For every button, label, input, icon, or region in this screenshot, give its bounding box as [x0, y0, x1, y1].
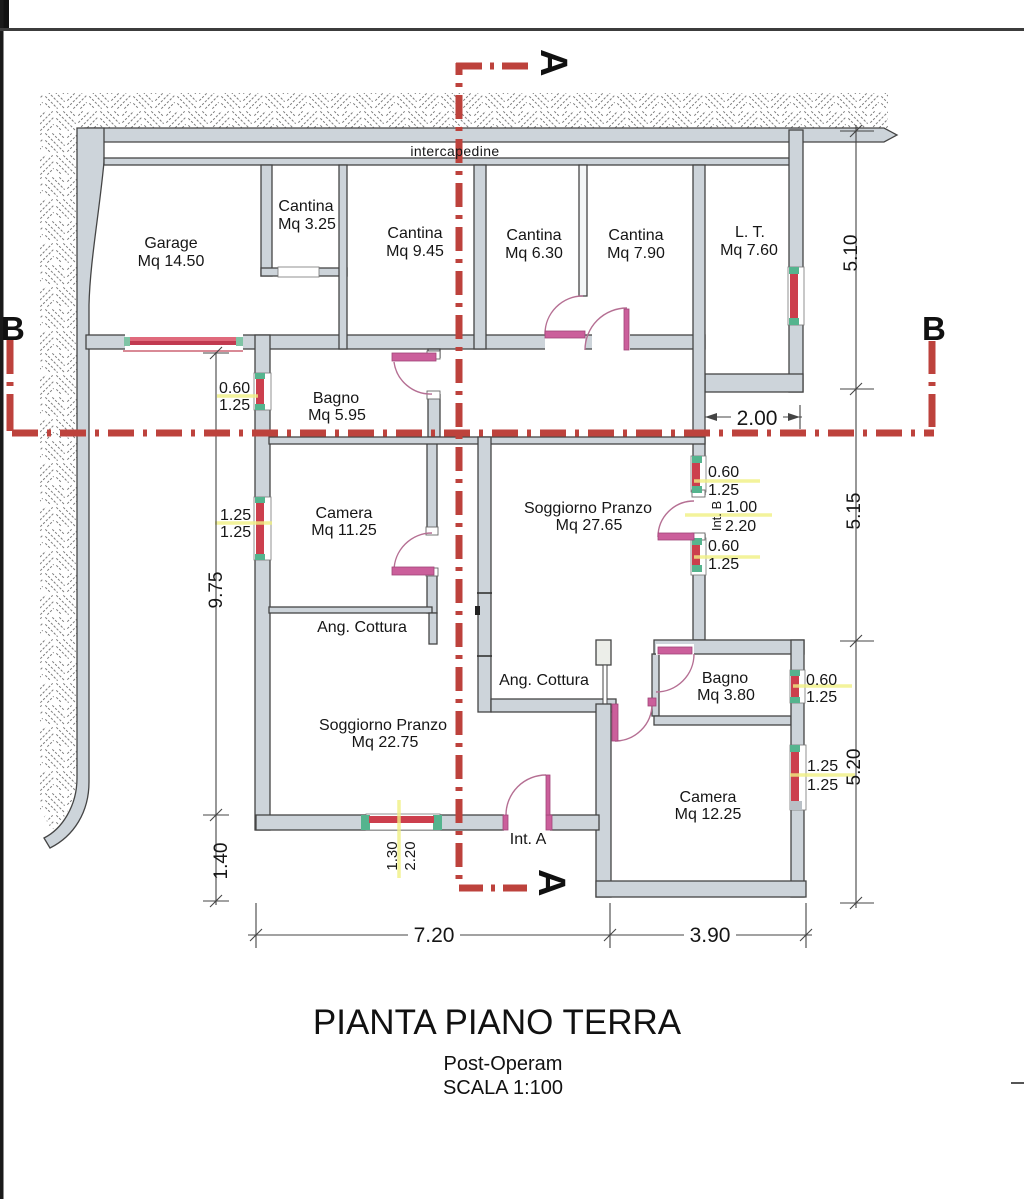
svg-text:0.60: 0.60 [806, 672, 837, 689]
svg-text:Soggiorno Pranzo: Soggiorno Pranzo [524, 500, 652, 517]
svg-text:1.25: 1.25 [220, 507, 251, 524]
svg-text:1.00: 1.00 [726, 499, 757, 516]
svg-text:Cantina: Cantina [608, 227, 663, 244]
svg-text:Int. A: Int. A [510, 831, 547, 848]
svg-text:1.30: 1.30 [384, 841, 401, 870]
svg-text:Ang. Cottura: Ang. Cottura [317, 619, 407, 636]
svg-text:PIANTA PIANO TERRA: PIANTA PIANO TERRA [313, 1003, 682, 1042]
svg-text:A: A [530, 869, 572, 896]
svg-text:Camera: Camera [680, 789, 737, 806]
svg-text:Bagno: Bagno [702, 670, 748, 687]
svg-text:Int. B: Int. B [709, 501, 724, 531]
svg-text:Cantina: Cantina [387, 225, 442, 242]
svg-text:Soggiorno Pranzo: Soggiorno Pranzo [319, 717, 447, 734]
svg-text:1.25: 1.25 [807, 758, 838, 775]
svg-text:2.00: 2.00 [737, 407, 778, 430]
svg-text:1.40: 1.40 [211, 843, 232, 880]
svg-text:5.15: 5.15 [844, 493, 865, 530]
svg-text:B: B [1, 310, 25, 347]
svg-text:Bagno: Bagno [313, 390, 359, 407]
svg-text:Mq 3.80: Mq 3.80 [697, 687, 755, 704]
svg-text:2.20: 2.20 [402, 841, 419, 870]
svg-text:Mq 5.95: Mq 5.95 [308, 407, 366, 424]
svg-text:5.20: 5.20 [844, 749, 865, 786]
svg-text:Mq 27.65: Mq 27.65 [556, 517, 623, 534]
svg-text:1.25: 1.25 [220, 524, 251, 541]
svg-text:Mq 14.50: Mq 14.50 [138, 253, 205, 270]
svg-text:Garage: Garage [144, 235, 197, 252]
svg-text:7.20: 7.20 [414, 924, 455, 947]
svg-text:1.25: 1.25 [219, 397, 250, 414]
svg-text:0.60: 0.60 [708, 538, 739, 555]
svg-text:Cantina: Cantina [506, 227, 561, 244]
svg-text:Mq 6.30: Mq 6.30 [505, 245, 563, 262]
svg-text:intercapedine: intercapedine [410, 143, 499, 159]
svg-text:Mq 11.25: Mq 11.25 [311, 522, 377, 539]
svg-text:L. T.: L. T. [735, 224, 765, 241]
svg-text:A: A [532, 49, 574, 76]
svg-text:SCALA 1:100: SCALA 1:100 [443, 1077, 563, 1099]
svg-text:Mq 7.60: Mq 7.60 [720, 242, 778, 259]
svg-text:Mq 7.90: Mq 7.90 [607, 245, 665, 262]
svg-text:9.75: 9.75 [206, 572, 227, 609]
svg-text:Post-Operam: Post-Operam [444, 1053, 563, 1075]
svg-text:5.10: 5.10 [841, 235, 862, 272]
svg-text:Mq 12.25: Mq 12.25 [675, 806, 742, 823]
svg-text:1.25: 1.25 [708, 482, 739, 499]
svg-text:1.25: 1.25 [806, 689, 837, 706]
svg-text:Camera: Camera [316, 505, 373, 522]
svg-text:Mq 9.45: Mq 9.45 [386, 243, 444, 260]
svg-text:3.90: 3.90 [690, 924, 731, 947]
svg-text:1.25: 1.25 [708, 556, 739, 573]
svg-text:Ang. Cottura: Ang. Cottura [499, 672, 589, 689]
svg-text:0.60: 0.60 [219, 380, 250, 397]
svg-text:Mq 3.25: Mq 3.25 [278, 216, 336, 233]
svg-text:B: B [922, 310, 946, 347]
svg-text:Mq 22.75: Mq 22.75 [352, 734, 419, 751]
svg-text:0.60: 0.60 [708, 464, 739, 481]
svg-text:Cantina: Cantina [278, 198, 333, 215]
svg-text:2.20: 2.20 [725, 518, 756, 535]
svg-text:1.25: 1.25 [807, 777, 838, 794]
